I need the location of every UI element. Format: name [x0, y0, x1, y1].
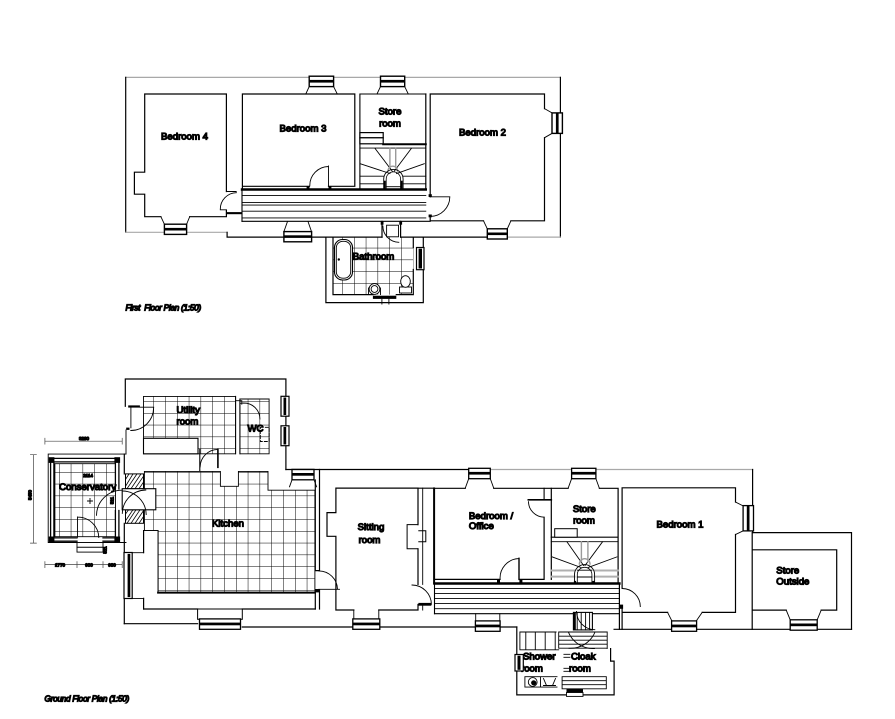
- svg-text:Store: Store: [379, 107, 402, 118]
- svg-text:Outside: Outside: [776, 577, 809, 588]
- svg-text:room: room: [359, 535, 381, 546]
- svg-text:Bedroom 2: Bedroom 2: [459, 128, 506, 139]
- svg-text:Sitting: Sitting: [358, 522, 385, 533]
- svg-text:3290: 3290: [79, 436, 90, 441]
- svg-text:Bedroom 3: Bedroom 3: [280, 124, 327, 135]
- svg-text:5450: 5450: [28, 489, 33, 500]
- svg-text:Utility: Utility: [177, 405, 201, 416]
- svg-text:1770: 1770: [55, 563, 66, 568]
- svg-text:room: room: [177, 417, 199, 428]
- svg-text:Ground Floor Plan (1:50): Ground Floor Plan (1:50): [45, 695, 130, 704]
- svg-text:Cloak: Cloak: [571, 652, 596, 663]
- svg-text:Bedroom 1: Bedroom 1: [657, 520, 704, 531]
- svg-text:900: 900: [108, 563, 116, 568]
- svg-text:First Floor Plan (1:50): First Floor Plan (1:50): [126, 304, 202, 313]
- svg-text:Shower: Shower: [523, 652, 556, 663]
- svg-text:Bathroom: Bathroom: [353, 252, 395, 263]
- svg-text:room: room: [573, 516, 595, 527]
- svg-text:Bedroom 4: Bedroom 4: [161, 132, 209, 143]
- svg-text:900: 900: [85, 563, 93, 568]
- svg-text:room: room: [569, 664, 591, 675]
- svg-text:Conservatory: Conservatory: [59, 482, 116, 493]
- svg-text:Kitchen: Kitchen: [212, 519, 244, 530]
- svg-text:Store: Store: [776, 566, 799, 577]
- svg-text:Office: Office: [469, 521, 494, 532]
- svg-text:room: room: [379, 119, 401, 130]
- svg-text:Store: Store: [573, 504, 596, 515]
- svg-text:WC: WC: [248, 424, 264, 435]
- svg-text:room: room: [521, 664, 543, 675]
